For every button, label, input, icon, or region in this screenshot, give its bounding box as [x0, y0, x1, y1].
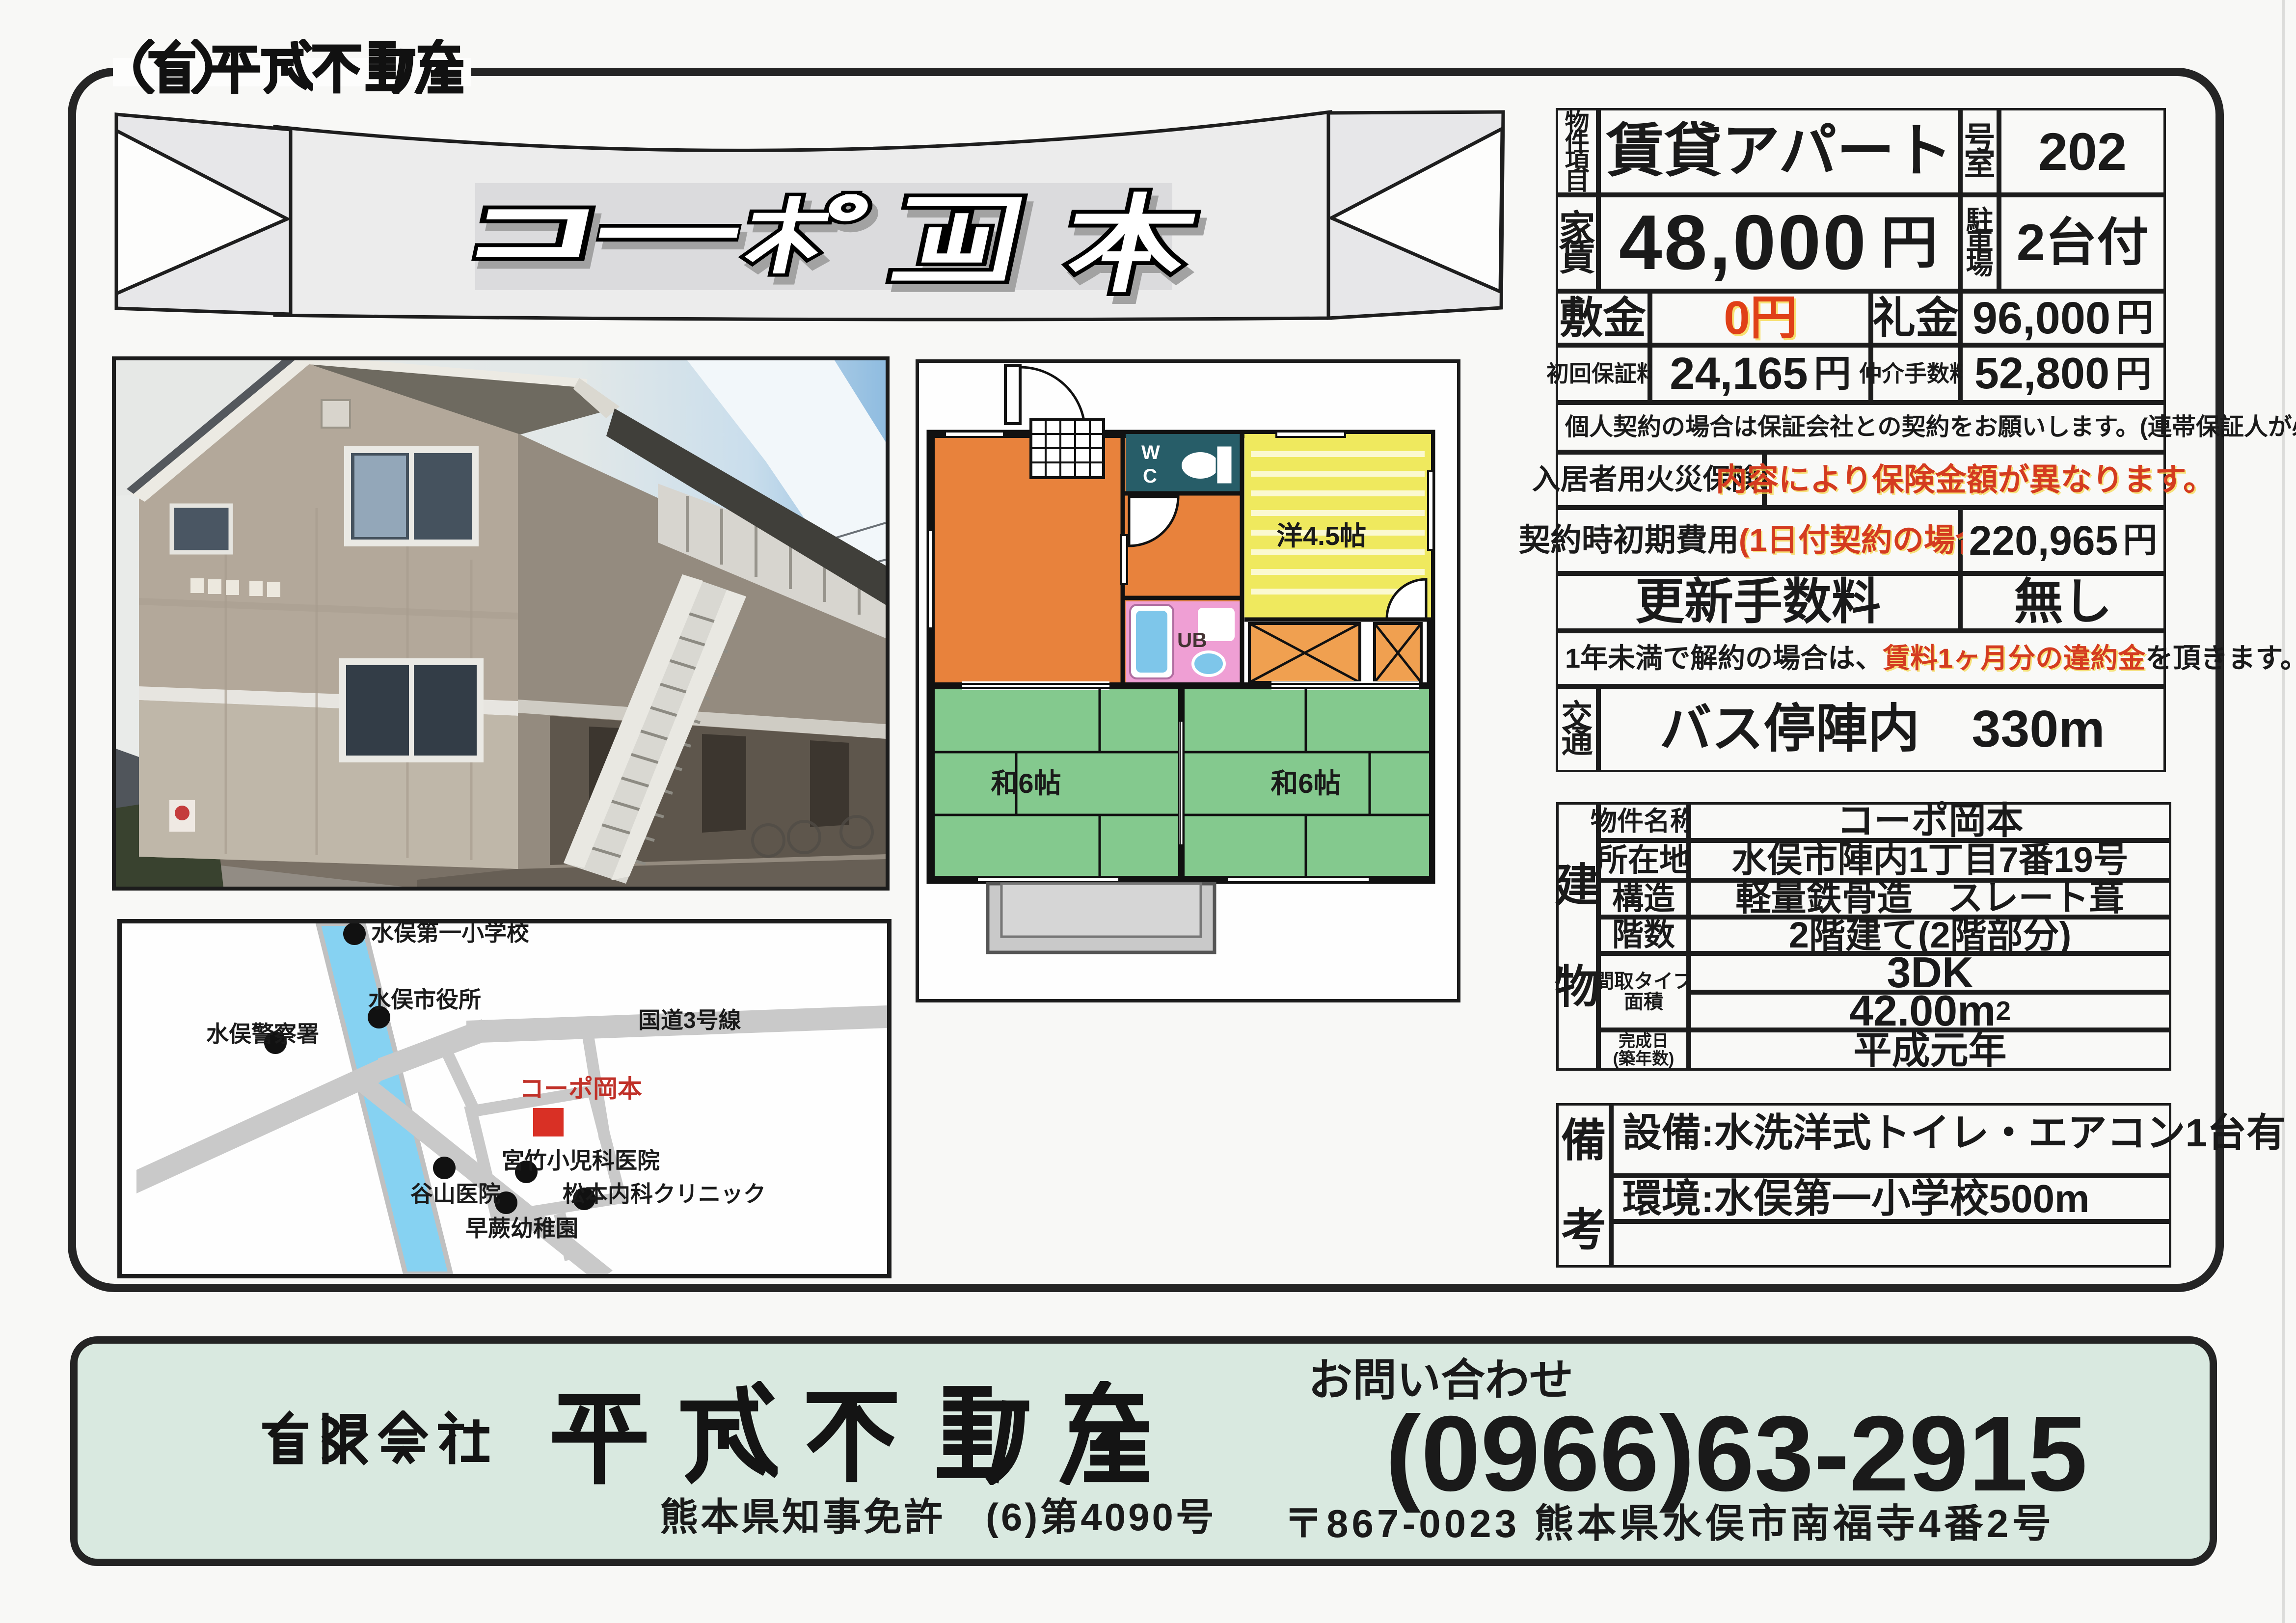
svg-text:W: W	[1141, 442, 1160, 463]
svg-text:C: C	[1143, 465, 1157, 487]
svg-text:UB: UB	[1177, 628, 1207, 651]
